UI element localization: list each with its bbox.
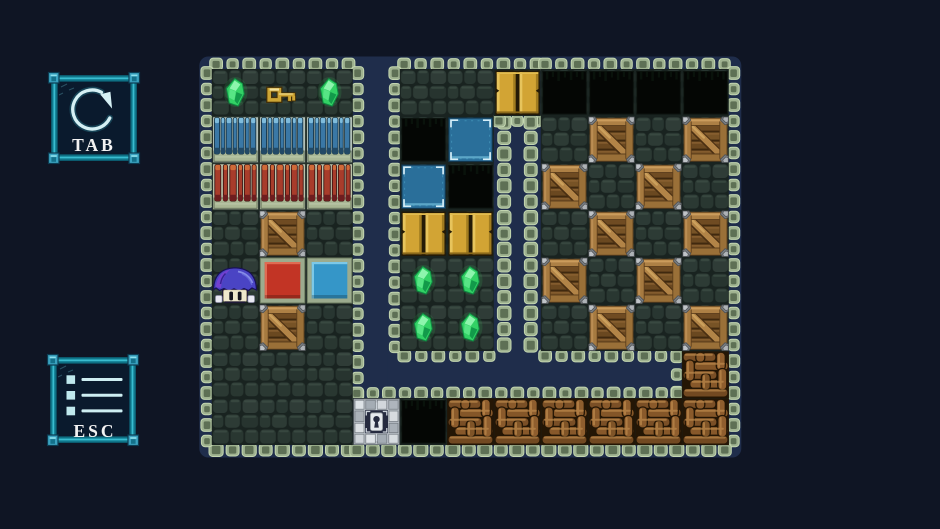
svg-text:ESC: ESC [73,421,116,441]
svg-text:TAB: TAB [72,135,116,155]
